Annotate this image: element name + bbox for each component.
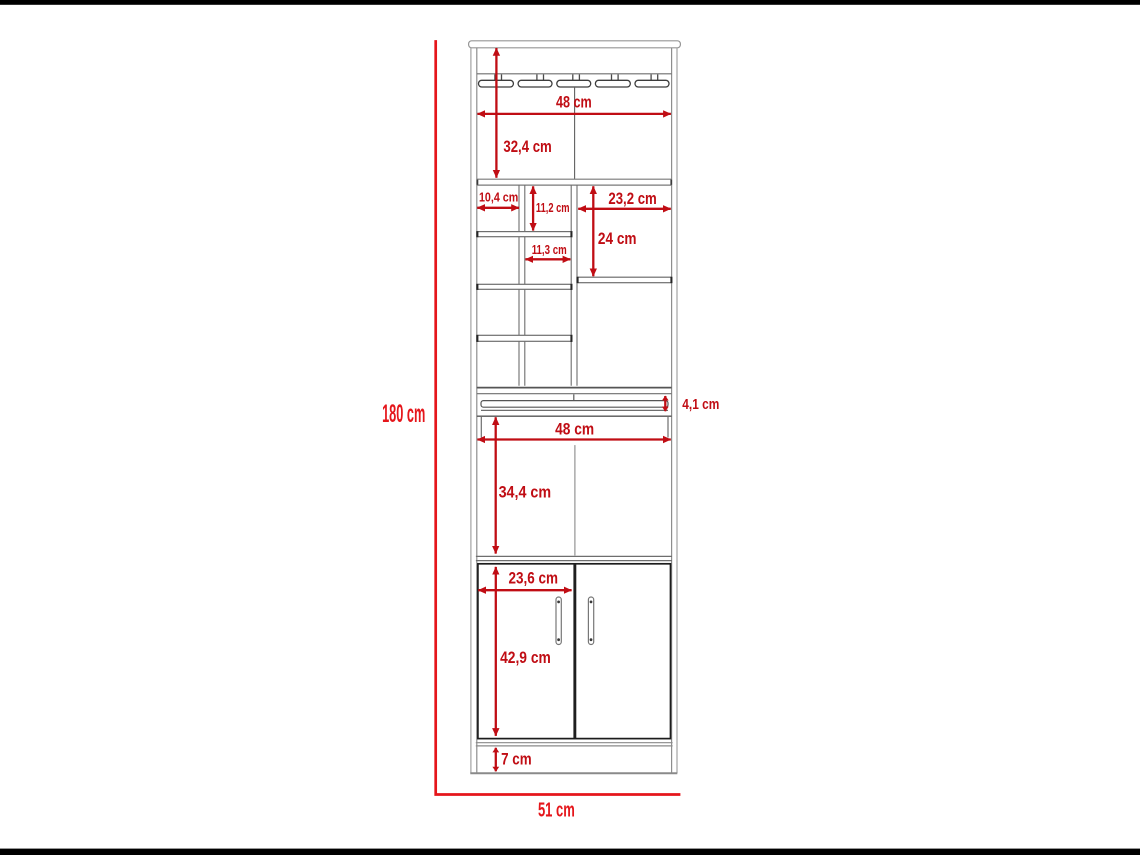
svg-text:11,2 cm: 11,2 cm	[536, 200, 570, 215]
svg-text:48 cm: 48 cm	[555, 420, 594, 439]
svg-text:180 cm: 180 cm	[382, 401, 425, 428]
svg-text:34,4 cm: 34,4 cm	[499, 483, 551, 502]
svg-text:48 cm: 48 cm	[556, 92, 592, 111]
svg-text:51 cm: 51 cm	[538, 799, 575, 822]
svg-text:24 cm: 24 cm	[598, 229, 637, 248]
svg-text:4,1 cm: 4,1 cm	[682, 396, 719, 413]
svg-text:7 cm: 7 cm	[501, 749, 531, 768]
svg-text:23,6 cm: 23,6 cm	[508, 569, 558, 588]
svg-text:32,4 cm: 32,4 cm	[503, 137, 551, 156]
svg-text:10,4 cm: 10,4 cm	[479, 189, 518, 204]
svg-text:11,3 cm: 11,3 cm	[532, 242, 567, 257]
svg-text:23,2 cm: 23,2 cm	[608, 189, 656, 208]
svg-text:42,9 cm: 42,9 cm	[500, 648, 551, 667]
